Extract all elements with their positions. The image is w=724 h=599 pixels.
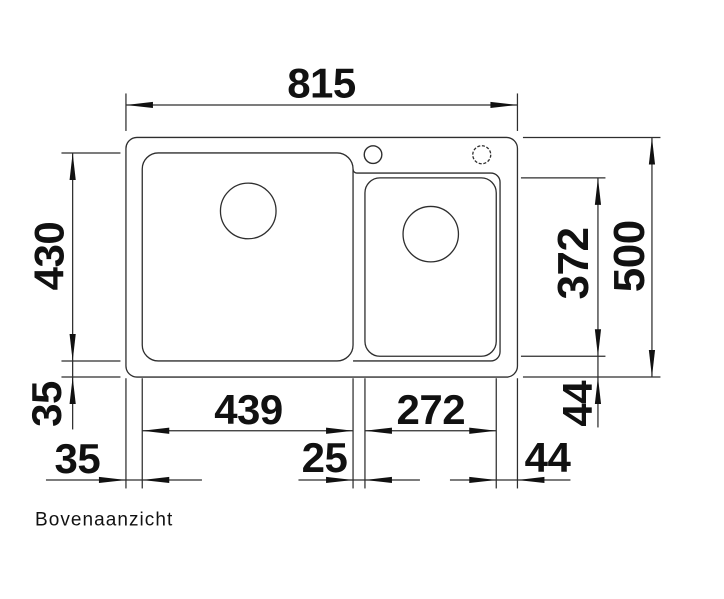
svg-text:44: 44 bbox=[525, 434, 572, 481]
svg-text:35: 35 bbox=[23, 381, 70, 427]
svg-text:35: 35 bbox=[55, 435, 101, 482]
svg-text:439: 439 bbox=[214, 386, 283, 433]
svg-text:815: 815 bbox=[287, 59, 356, 106]
svg-text:25: 25 bbox=[302, 434, 348, 481]
svg-text:430: 430 bbox=[26, 222, 73, 291]
svg-text:500: 500 bbox=[605, 220, 654, 292]
svg-text:272: 272 bbox=[397, 386, 466, 433]
svg-text:44: 44 bbox=[554, 380, 601, 427]
svg-text:372: 372 bbox=[549, 228, 598, 300]
svg-text:Bovenaanzicht: Bovenaanzicht bbox=[35, 509, 173, 530]
